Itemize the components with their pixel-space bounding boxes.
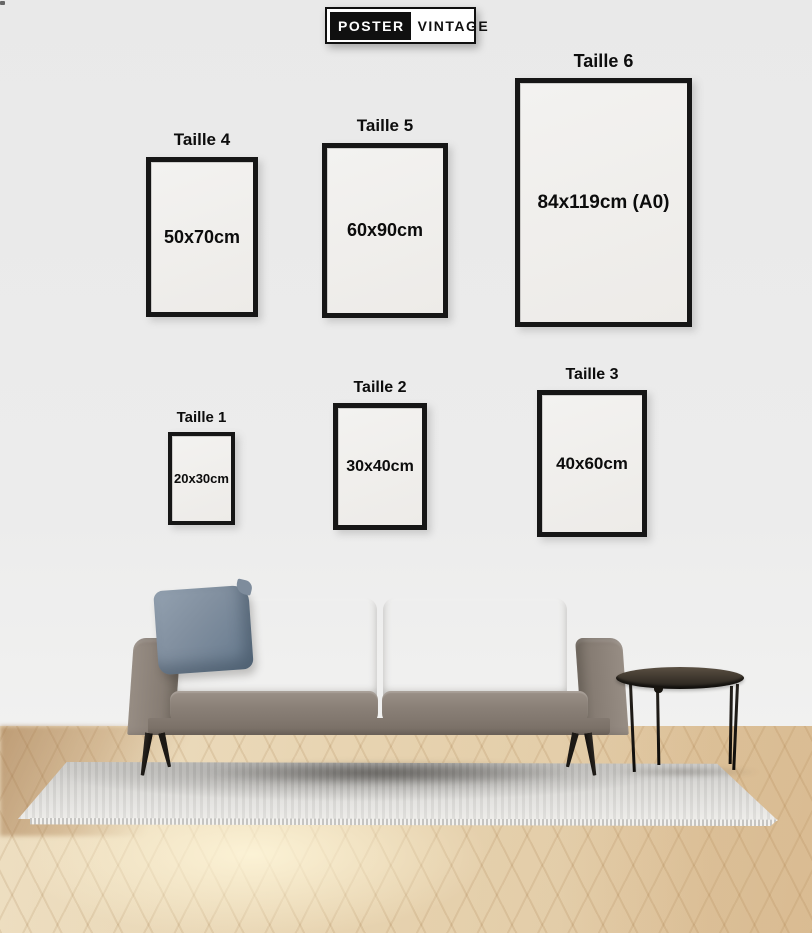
size-option-title: Taille 6 (485, 50, 722, 72)
table-leg (629, 684, 636, 772)
brand-poster-label: POSTER (330, 12, 411, 40)
size-option-title: Taille 2 (303, 377, 457, 399)
size-option-title: Taille 4 (116, 129, 288, 151)
frame-dimensions: 20x30cm (174, 471, 229, 486)
sofa-leg-right (562, 733, 596, 777)
sofa-leg-left (141, 733, 175, 777)
throw-pillow (153, 585, 254, 675)
poster-size-guide-scene: POSTER VINTAGE Taille 4 50x70cm Taille 5… (0, 0, 812, 933)
poster-frame: 30x40cm (333, 403, 427, 530)
frame-dimensions: 30x40cm (346, 458, 414, 476)
size-option-title: Taille 1 (138, 407, 265, 429)
size-option-taille-2: Taille 2 30x40cm (333, 403, 427, 530)
poster-frame: 50x70cm (146, 157, 258, 317)
sofa-leg-prong (564, 732, 579, 768)
sofa-leg-prong (138, 732, 153, 776)
sofa-leg-prong (158, 732, 173, 768)
brand-logo: POSTER VINTAGE (325, 7, 476, 44)
poster-frame: 60x90cm (322, 143, 448, 318)
sofa-back-cushion-right (383, 598, 567, 700)
table-top (616, 667, 744, 689)
frame-dimensions: 40x60cm (556, 454, 628, 474)
brand-vintage-label: VINTAGE (411, 19, 494, 33)
frame-dimensions: 60x90cm (347, 220, 423, 241)
size-option-taille-3: Taille 3 40x60cm (537, 390, 647, 537)
poster-frame: 40x60cm (537, 390, 647, 537)
table-leg (732, 684, 739, 770)
sofa (130, 588, 626, 778)
poster-frame: 20x30cm (168, 432, 235, 525)
table-leg (656, 687, 660, 765)
size-option-taille-6: Taille 6 84x119cm (A0) (515, 78, 692, 327)
sofa-leg-prong (584, 732, 599, 776)
size-option-title: Taille 5 (292, 115, 478, 137)
sofa-base (148, 718, 610, 735)
corner-artifact (0, 1, 5, 5)
table-knob (654, 686, 663, 693)
frame-dimensions: 84x119cm (A0) (537, 192, 669, 214)
size-option-taille-4: Taille 4 50x70cm (146, 157, 258, 317)
poster-frame: 84x119cm (A0) (515, 78, 692, 327)
side-table (616, 667, 744, 777)
frame-dimensions: 50x70cm (164, 227, 240, 248)
size-option-taille-5: Taille 5 60x90cm (322, 143, 448, 318)
size-option-title: Taille 3 (507, 364, 677, 386)
size-option-taille-1: Taille 1 20x30cm (168, 432, 235, 525)
